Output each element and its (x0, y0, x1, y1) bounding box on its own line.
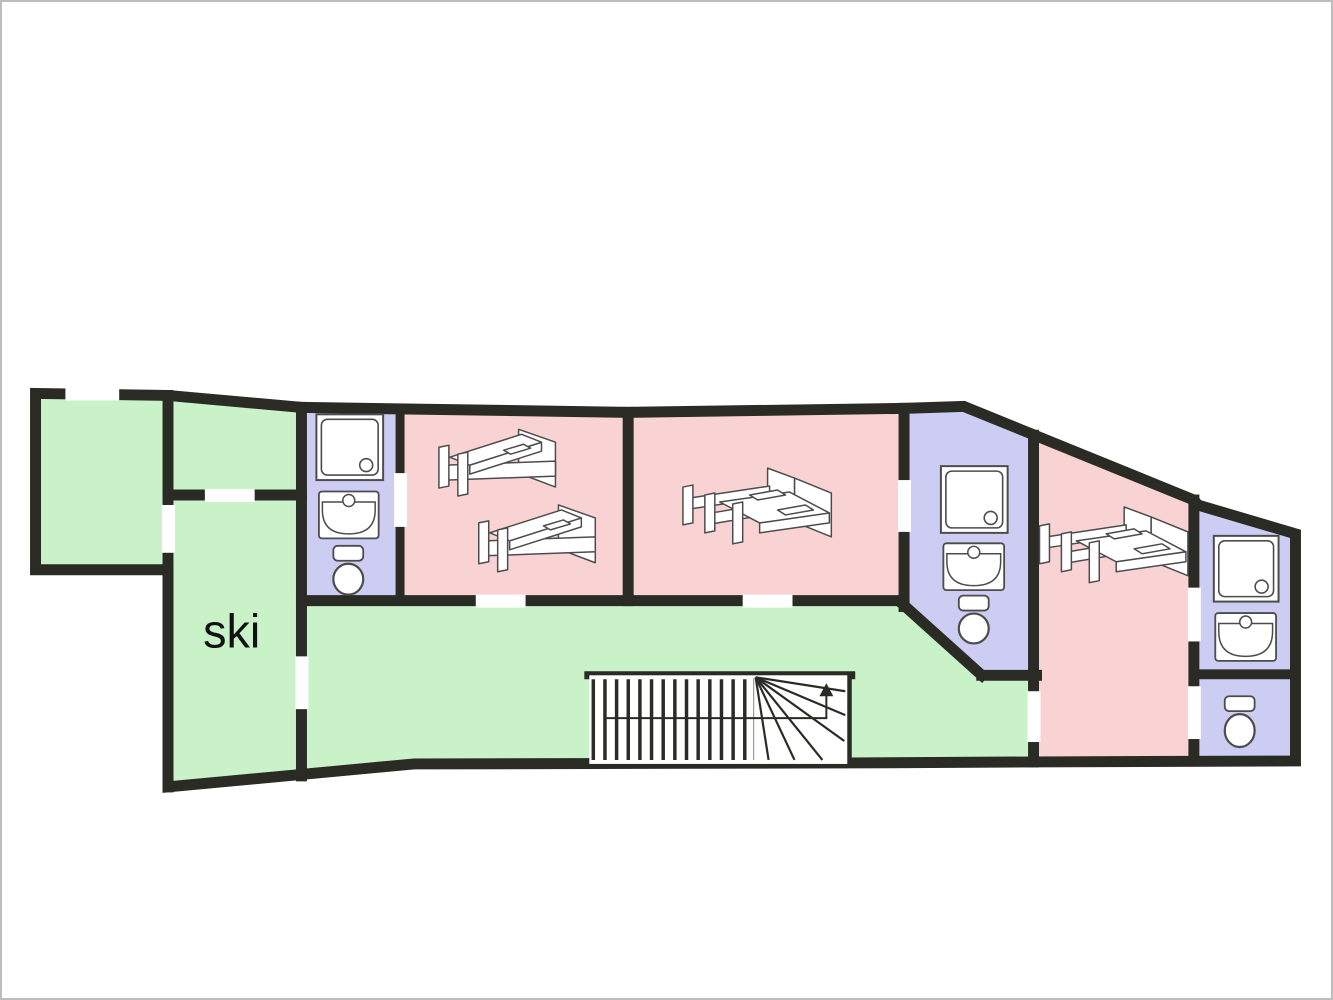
toilet-bowl (1225, 714, 1255, 747)
toilet-icon (959, 596, 989, 644)
bed-part (705, 493, 715, 533)
toilet-bowl (959, 614, 989, 644)
shower-drain (360, 459, 373, 472)
bed-part (458, 452, 468, 496)
room-green-room-1 (36, 393, 168, 569)
toilet-tank (959, 596, 989, 611)
sink-icon (943, 543, 1004, 590)
bed-part (1061, 532, 1071, 572)
floor-plan-page: ski (0, 0, 1333, 1000)
sink-icon (1215, 613, 1276, 661)
sink-faucet (343, 495, 355, 507)
shower-drain (1255, 580, 1268, 593)
toilet-icon (1225, 696, 1255, 747)
door-bedroom-3-bathroom-3 (1188, 588, 1201, 642)
shower-drain (984, 511, 997, 524)
room-bedroom-3 (1034, 435, 1194, 762)
sink-faucet (1240, 616, 1252, 628)
shower-icon (941, 466, 1008, 533)
door-green-room-2-ski (205, 489, 255, 502)
door-bedroom-3-wc (1188, 686, 1201, 739)
sink-icon (319, 492, 379, 539)
ski-room-label: ski (203, 605, 260, 657)
shower-tray (941, 466, 1008, 533)
shower-tray (1214, 536, 1279, 602)
door-bedroom-2-corridor (743, 595, 793, 608)
door-bedroom-1-corridor (476, 595, 526, 608)
window-green-room-1 (65, 387, 119, 400)
sink-faucet (968, 546, 980, 558)
door-bedroom-2-bathroom-2 (898, 480, 911, 532)
shower-icon (316, 414, 383, 480)
toilet-tank (1225, 696, 1255, 711)
shower-tray (316, 414, 383, 480)
bed-part (479, 521, 489, 564)
floor-plan-svg: ski (2, 2, 1331, 998)
bed-part (439, 445, 449, 488)
toilet-icon (333, 546, 363, 595)
door-ski-corridor (295, 656, 308, 709)
toilet-bowl (333, 564, 363, 595)
door-green-room-1-ski (162, 505, 175, 553)
bed-part (1040, 524, 1050, 564)
bed-part (733, 502, 743, 544)
door-bathroom-1-bedroom-1 (394, 473, 407, 527)
bed-part (498, 528, 508, 572)
staircase (589, 675, 847, 764)
door-corridor-bedroom-3 (1028, 691, 1041, 742)
toilet-tank (333, 546, 363, 561)
shower-icon (1214, 536, 1279, 602)
bed-part (1089, 541, 1099, 583)
bed-part (683, 485, 693, 525)
